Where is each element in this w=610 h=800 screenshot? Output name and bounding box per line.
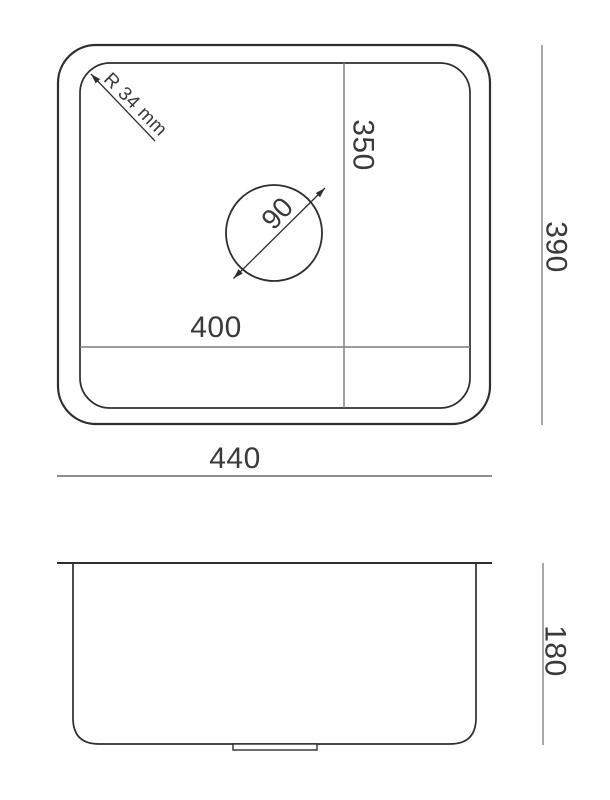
- top-view: R 34 mm 90 350 400 390 440: [57, 45, 573, 476]
- overall-width-label: 440: [209, 442, 261, 475]
- overall-depth-label: 390: [540, 221, 573, 273]
- drawing-canvas: R 34 mm 90 350 400 390 440 180: [0, 0, 610, 800]
- side-body-outline: [73, 563, 476, 744]
- corner-radius-label: R 34 mm: [99, 69, 171, 141]
- bowl-width-label: 400: [190, 311, 242, 344]
- drain-outlet: [233, 744, 317, 750]
- bowl-depth-label: 350: [347, 119, 380, 171]
- height-label: 180: [539, 625, 572, 677]
- sink-technical-drawing: R 34 mm 90 350 400 390 440 180: [0, 0, 610, 800]
- side-view: 180: [57, 563, 572, 750]
- drain-diameter-label: 90: [255, 191, 299, 235]
